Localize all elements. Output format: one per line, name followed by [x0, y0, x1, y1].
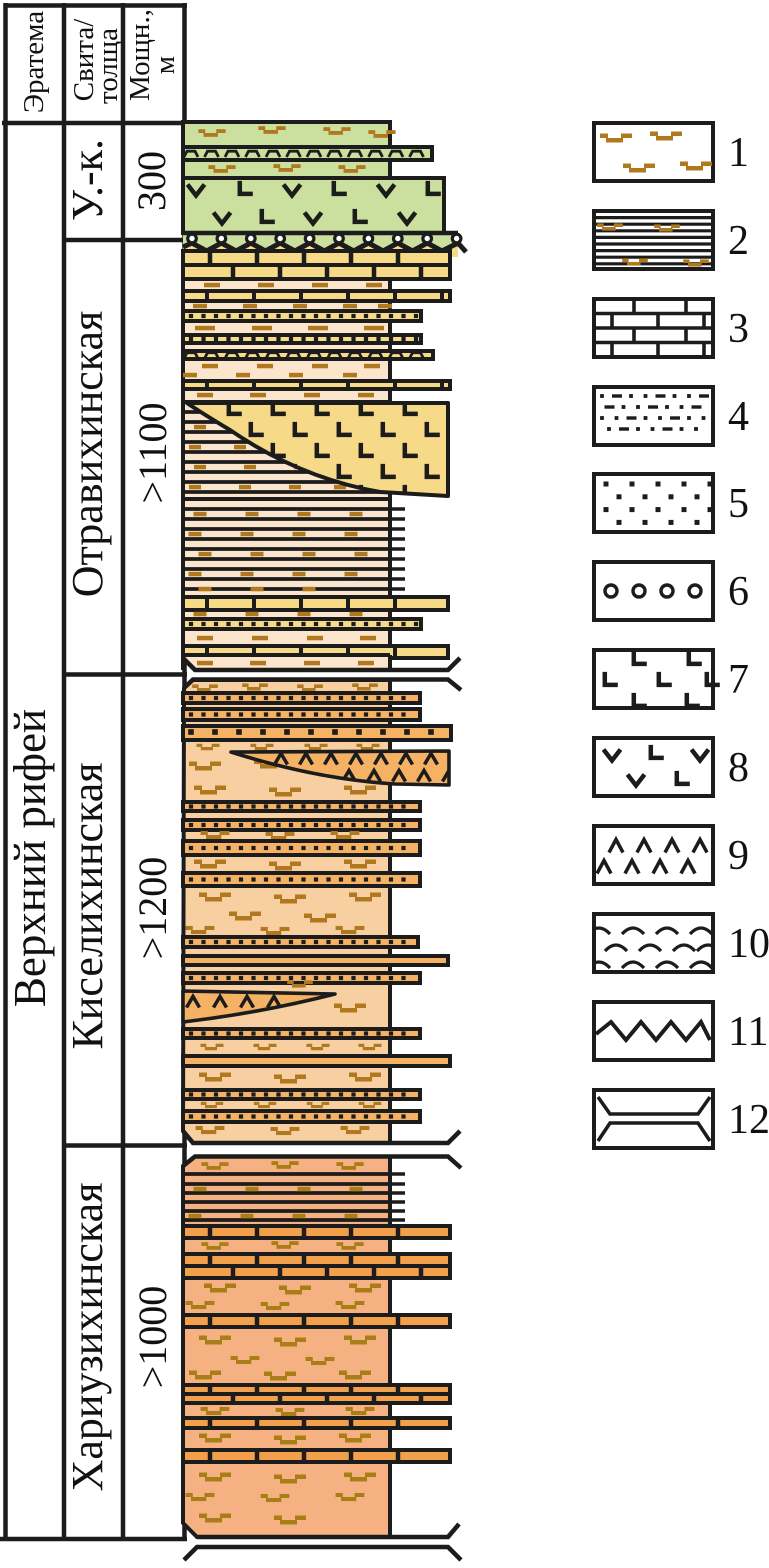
svg-text:толща: толща [92, 28, 124, 104]
svg-text:12: 12 [728, 1097, 769, 1143]
svg-text:9: 9 [728, 833, 749, 879]
svg-text:7: 7 [728, 657, 749, 703]
svg-text:2: 2 [728, 218, 749, 264]
svg-text:10: 10 [728, 921, 769, 967]
svg-text:Хариузихинская: Хариузихинская [63, 1183, 112, 1492]
svg-text:Верхний рифей: Верхний рифей [5, 709, 55, 1007]
svg-text:8: 8 [728, 745, 749, 791]
svg-text:11: 11 [728, 1009, 768, 1055]
svg-text:Мощн.,: Мощн., [124, 9, 156, 101]
svg-text:1: 1 [728, 130, 749, 176]
svg-text:6: 6 [728, 569, 749, 615]
svg-text:м: м [149, 56, 181, 74]
svg-text:4: 4 [728, 394, 749, 440]
svg-text:5: 5 [728, 481, 749, 527]
svg-text:300: 300 [129, 151, 174, 211]
svg-text:>1200: >1200 [130, 857, 175, 960]
svg-text:Отравихинская: Отравихинская [63, 311, 112, 598]
svg-text:У.-к.: У.-к. [63, 139, 112, 221]
svg-text:>1000: >1000 [130, 1286, 175, 1389]
svg-text:Эратема: Эратема [18, 11, 50, 113]
svg-text:Киселихинская: Киселихинская [63, 762, 112, 1049]
svg-text:3: 3 [728, 306, 749, 352]
svg-text:>1100: >1100 [130, 402, 175, 503]
